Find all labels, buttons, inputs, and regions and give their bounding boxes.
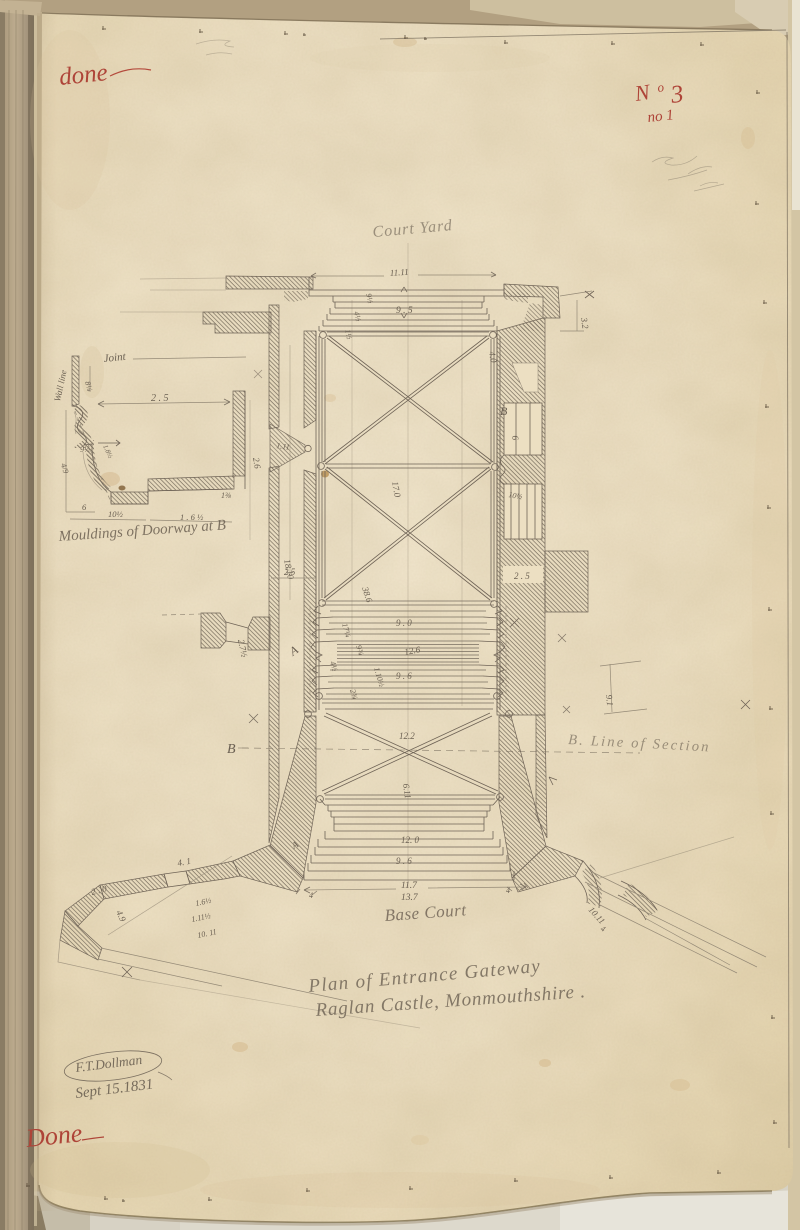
svg-text:11.11: 11.11 [389, 267, 409, 278]
svg-text:4: 4 [309, 891, 313, 900]
svg-text:Done: Done [24, 1118, 84, 1153]
svg-text:2.5: 2.5 [284, 567, 296, 577]
svg-text:2 . 5: 2 . 5 [151, 393, 169, 404]
svg-text:9 . 0: 9 . 0 [396, 618, 412, 628]
svg-text:no 1: no 1 [647, 107, 675, 126]
svg-text:9 . 6: 9 . 6 [396, 671, 412, 681]
svg-text:B: B [500, 404, 508, 418]
svg-text:4.0: 4.0 [487, 351, 499, 364]
svg-text:13.7: 13.7 [401, 893, 419, 903]
svg-text:B: B [227, 742, 236, 757]
svg-text:done: done [58, 59, 109, 91]
svg-text:Joint: Joint [103, 351, 127, 365]
svg-text:1.11: 1.11 [276, 441, 291, 452]
svg-text:11.7: 11.7 [401, 881, 418, 891]
svg-text:9 . 5: 9 . 5 [396, 306, 413, 316]
svg-text:2 . 5: 2 . 5 [514, 571, 530, 581]
svg-text:9½: 9½ [80, 445, 90, 454]
svg-text:10½: 10½ [108, 509, 124, 519]
svg-text:12.2: 12.2 [399, 731, 415, 741]
svg-text:3.2: 3.2 [579, 316, 591, 330]
svg-text:9 . 6: 9 . 6 [396, 856, 412, 866]
svg-text:4: 4 [506, 886, 510, 895]
svg-text:1⅜: 1⅜ [221, 491, 231, 500]
svg-text:6.11: 6.11 [401, 783, 413, 799]
svg-text:9.1: 9.1 [604, 694, 615, 706]
svg-text:2.6: 2.6 [251, 457, 263, 470]
svg-text:12. 0: 12. 0 [401, 835, 420, 845]
